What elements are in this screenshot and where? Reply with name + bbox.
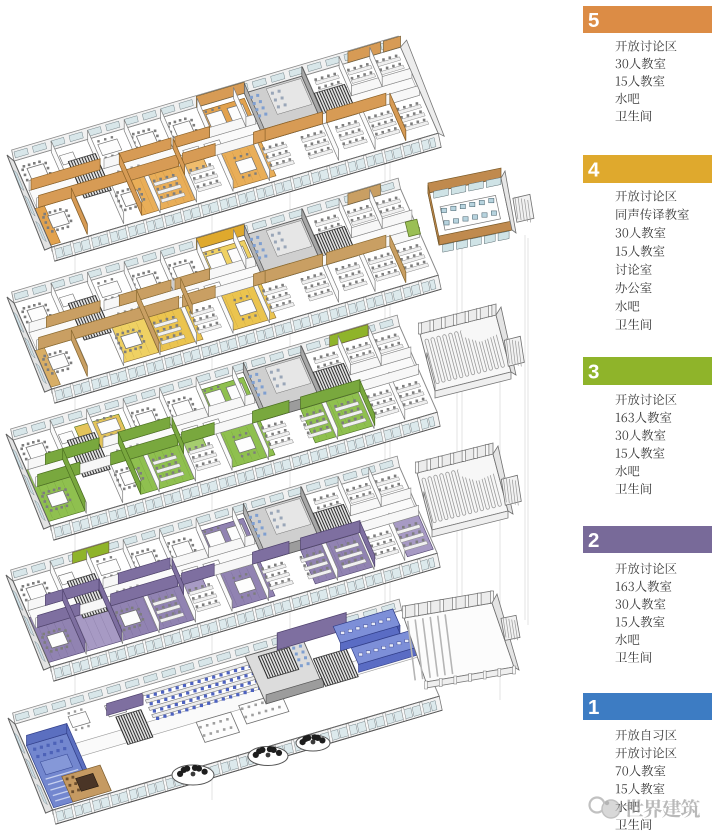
svg-text:1: 1 <box>588 696 599 719</box>
svg-text:2: 2 <box>588 529 599 552</box>
svg-text:4: 4 <box>588 158 600 181</box>
svg-text:3: 3 <box>588 360 599 383</box>
svg-text:5: 5 <box>588 9 599 32</box>
